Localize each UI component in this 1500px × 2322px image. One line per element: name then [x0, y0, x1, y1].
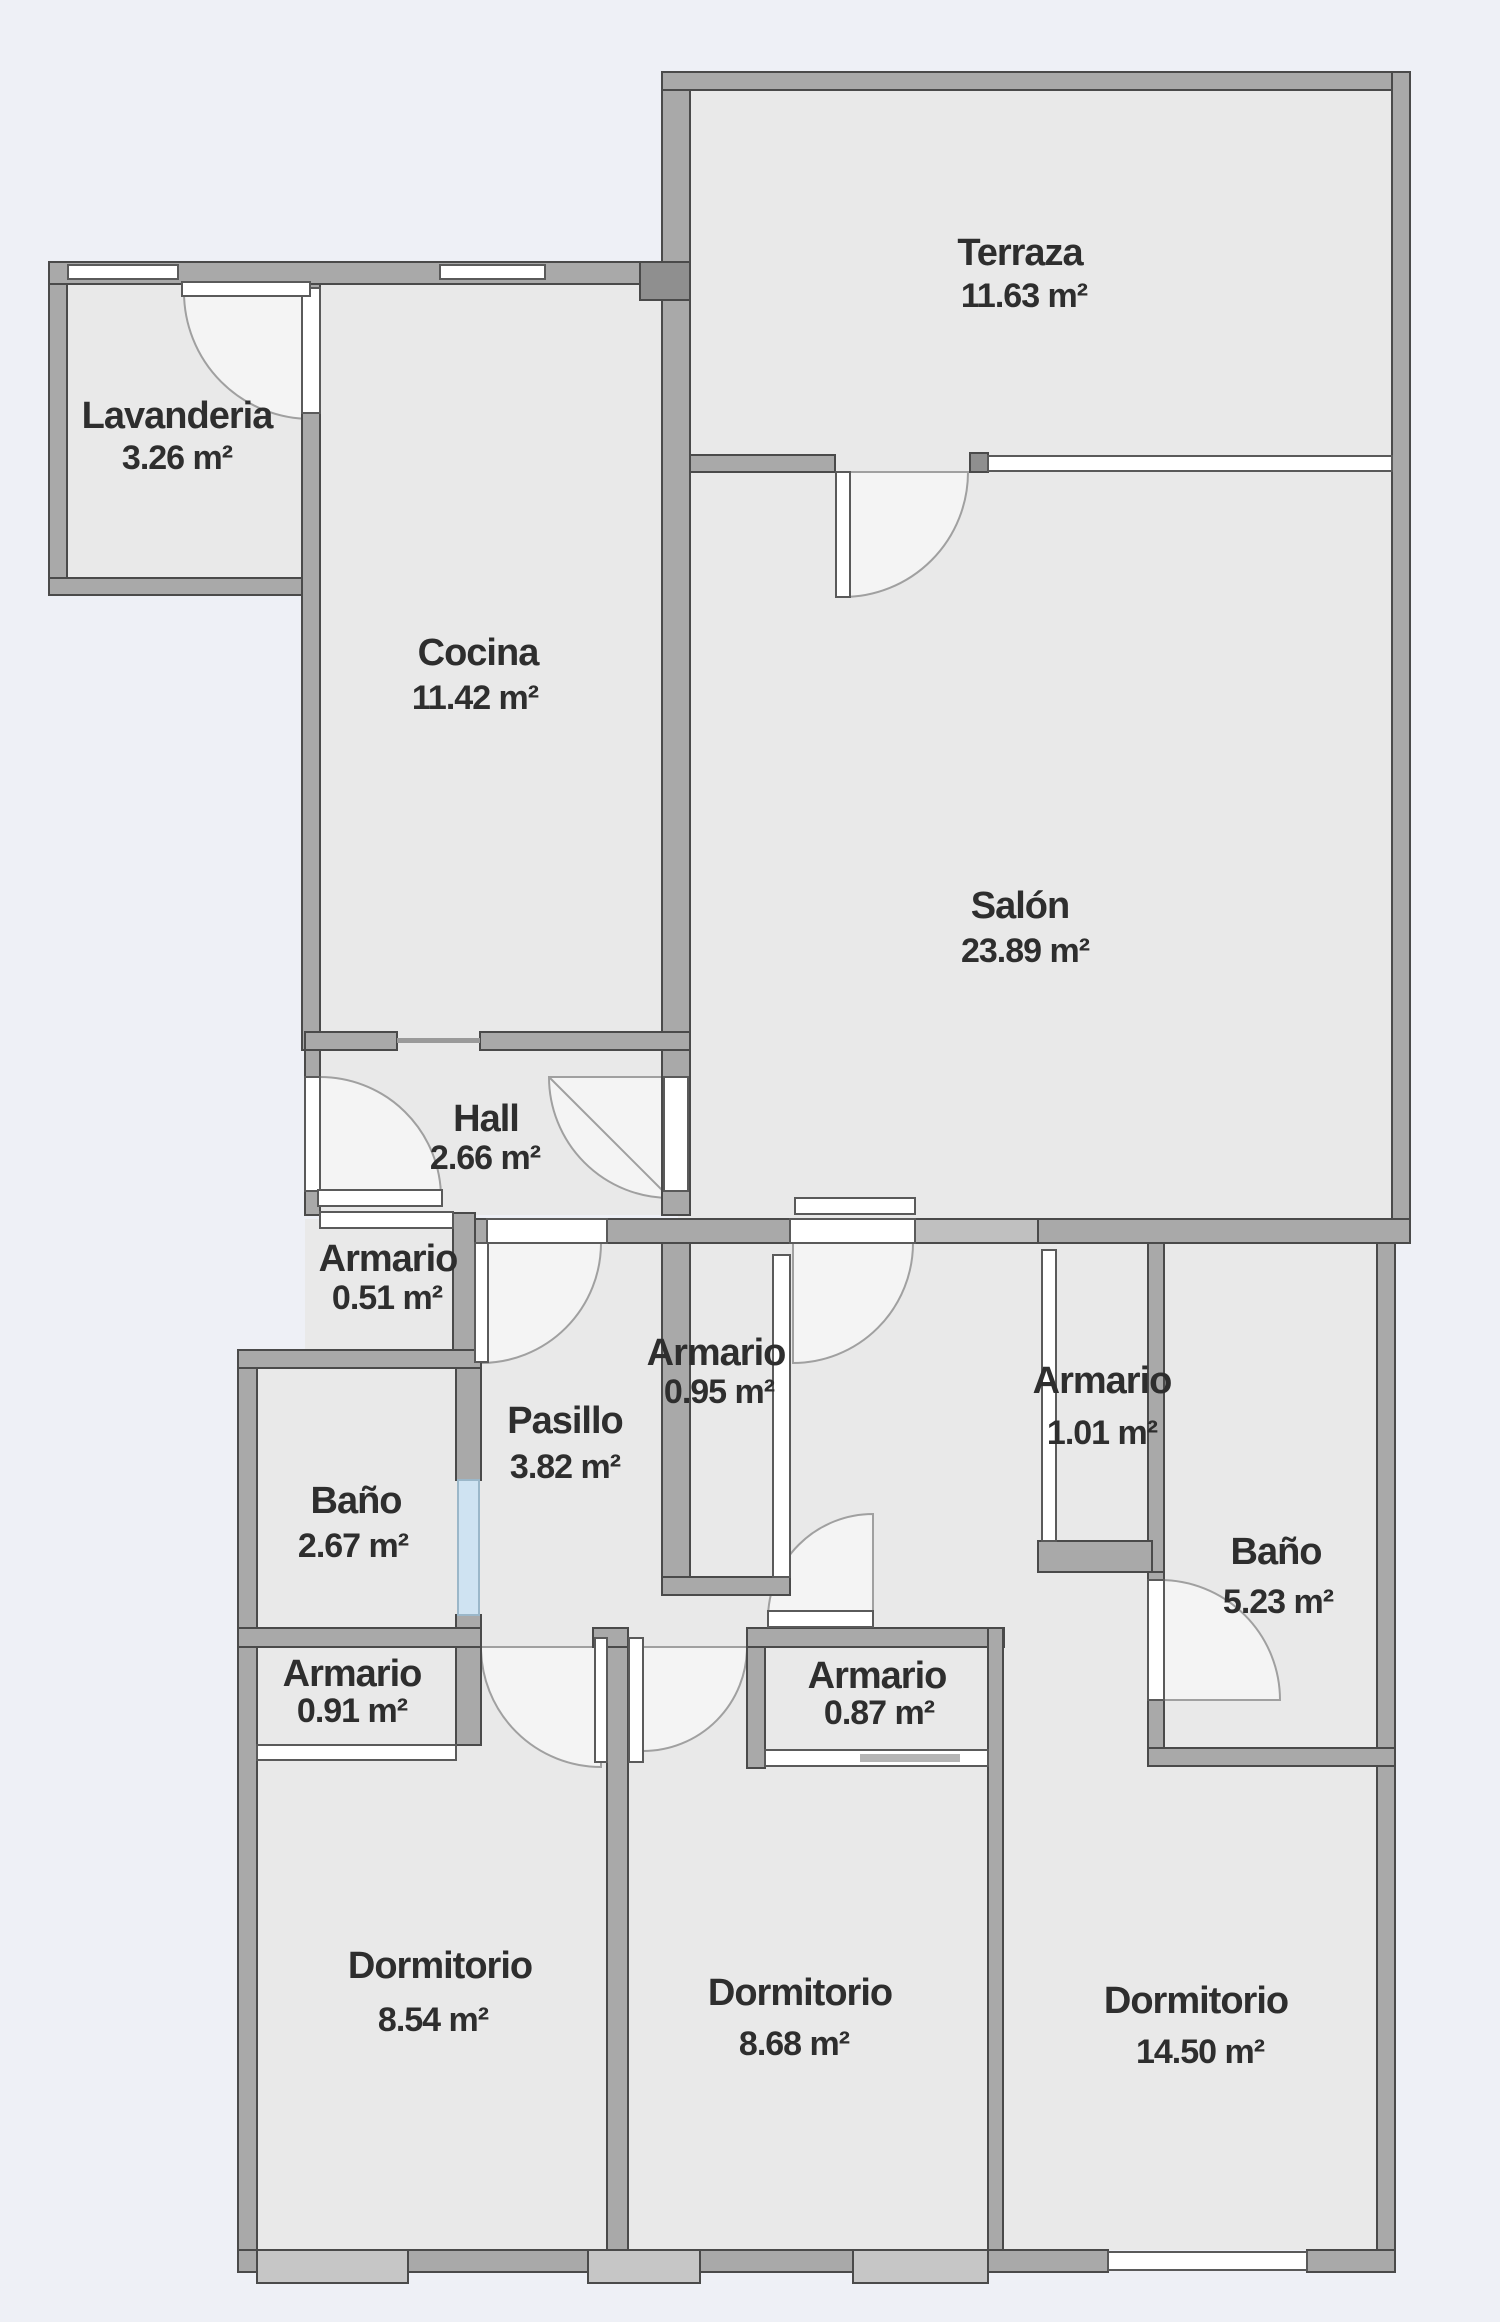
- armario095-front: [773, 1255, 790, 1577]
- lavanderia-door-leaf: [182, 282, 310, 296]
- salon-hall-door-opening: [664, 1077, 688, 1191]
- dividing-wall-b: [1038, 1219, 1410, 1243]
- passage-door-leaf: [768, 1611, 873, 1627]
- terraza-window: [988, 456, 1392, 471]
- label-lavanderia: Lavanderia: [82, 395, 275, 437]
- banio2-door-opening: [1148, 1580, 1164, 1700]
- bedroom-zone-floor: [257, 1350, 1377, 2250]
- armario051-right-wall: [453, 1213, 475, 1368]
- sill-dorm2: [853, 2250, 988, 2283]
- dividing-wall-low: [915, 1219, 1038, 1243]
- bottom-wall-b: [700, 2250, 853, 2272]
- sill-divider: [588, 2250, 700, 2283]
- sill-dorm1: [257, 2250, 408, 2283]
- cocina-bottom-wall-left: [305, 1032, 397, 1050]
- banio2-bottom-wall: [1148, 1748, 1395, 1766]
- dorm1-door-leaf: [595, 1638, 607, 1762]
- label-armario091: Armario: [283, 1653, 422, 1695]
- label-armario051-area: 0.51 m²: [332, 1279, 443, 1317]
- armario087-top-wall: [747, 1628, 1004, 1647]
- terraza-door-post: [970, 453, 988, 472]
- bottom-wall-c: [988, 2250, 1108, 2272]
- label-dormitorio2: Dormitorio: [708, 1972, 892, 2014]
- armario087-left-wall: [747, 1647, 765, 1768]
- divider-dorm2-dorm3: [988, 1628, 1003, 2250]
- bottom-wall-corner-left: [238, 2250, 257, 2272]
- terraza-door-leaf: [836, 472, 850, 597]
- bottom-wall-a: [408, 2250, 588, 2272]
- label-dormitorio2-area: 8.68 m²: [739, 2025, 850, 2063]
- salon-pasillo-door-leaf: [795, 1198, 915, 1214]
- cocina-sliding-door: [397, 1038, 480, 1043]
- banio1-glass-partition: [458, 1480, 479, 1615]
- lavanderia-left-wall: [49, 284, 67, 595]
- label-banio2-area: 5.23 m²: [1223, 1583, 1334, 1621]
- divider-dorm1-dorm2: [607, 1647, 628, 2250]
- label-cocina-area: 11.42 m²: [412, 679, 539, 717]
- cocina-window: [440, 265, 545, 279]
- lavanderia-window: [68, 265, 178, 279]
- bottom-wall-corner-right: [1307, 2250, 1395, 2272]
- label-armario101: Armario: [1033, 1360, 1172, 1402]
- cocina-bottom-wall-right: [480, 1032, 690, 1050]
- label-salon: Salón: [971, 885, 1069, 927]
- label-armario087: Armario: [808, 1655, 947, 1697]
- hall-pasillo-opening: [487, 1219, 607, 1243]
- right-wall-upper: [1392, 72, 1410, 1232]
- label-hall: Hall: [453, 1098, 519, 1140]
- label-armario101-area: 1.01 m²: [1047, 1414, 1158, 1452]
- label-banio1-area: 2.67 m²: [298, 1527, 409, 1565]
- floor-plan: Terraza 11.63 m² Lavanderia 3.26 m² Coci…: [0, 0, 1500, 2322]
- label-dormitorio1: Dormitorio: [348, 1945, 532, 1987]
- label-banio1: Baño: [311, 1480, 402, 1522]
- label-salon-area: 23.89 m²: [961, 932, 1090, 970]
- label-banio2: Baño: [1231, 1531, 1322, 1573]
- label-lavanderia-area: 3.26 m²: [122, 439, 233, 477]
- salon-floor: [678, 472, 1392, 1232]
- armario101-bottom-wall: [1038, 1541, 1152, 1572]
- label-dormitorio3: Dormitorio: [1104, 1980, 1288, 2022]
- banio1-bottom-wall: [238, 1628, 481, 1647]
- cocina-hall-floor: [320, 284, 662, 1215]
- label-pasillo: Pasillo: [507, 1400, 623, 1442]
- armario095-bottom-wall: [662, 1577, 790, 1595]
- armario101-right-wall: [1148, 1243, 1164, 1572]
- dorm2-door-leaf: [629, 1638, 643, 1762]
- label-cocina: Cocina: [418, 632, 541, 674]
- label-armario095: Armario: [647, 1332, 786, 1374]
- salon-pasillo-opening: [790, 1219, 915, 1243]
- label-pasillo-area: 3.82 m²: [510, 1448, 621, 1486]
- dividing-wall-a: [607, 1219, 790, 1243]
- label-armario051: Armario: [319, 1238, 458, 1280]
- cocina-top-corner-post: [640, 262, 690, 300]
- banio1-right-wall-upper: [456, 1368, 481, 1480]
- armario091-front: [257, 1745, 456, 1760]
- armario051-front: [320, 1212, 453, 1228]
- left-wall-lower: [238, 1350, 257, 2272]
- label-dormitorio3-area: 14.50 m²: [1136, 2033, 1265, 2071]
- label-armario095-area: 0.95 m²: [664, 1373, 775, 1411]
- label-armario091-area: 0.91 m²: [297, 1692, 408, 1730]
- label-hall-area: 2.66 m²: [430, 1139, 541, 1177]
- label-dormitorio1-area: 8.54 m²: [378, 2001, 489, 2039]
- terraza-top-wall: [662, 72, 1410, 90]
- label-terraza-area: 11.63 m²: [961, 277, 1088, 315]
- lavanderia-door-opening: [302, 288, 320, 413]
- label-armario087-area: 0.87 m²: [824, 1694, 935, 1732]
- window-sills: [257, 2250, 988, 2283]
- banio1-top-wall: [238, 1350, 481, 1368]
- dividing-wall-post: [475, 1219, 487, 1243]
- entrance-door-opening: [305, 1077, 320, 1191]
- hall-pasillo-door-leaf: [475, 1243, 488, 1362]
- armario091-right-wall: [456, 1647, 481, 1745]
- armario087-front-rail: [860, 1754, 960, 1762]
- label-terraza: Terraza: [957, 232, 1084, 274]
- dorm3-window: [1108, 2252, 1307, 2270]
- entrance-door-leaf: [318, 1190, 442, 1206]
- armario095-left-wall: [662, 1243, 690, 1595]
- lavanderia-bottom-wall: [49, 578, 320, 595]
